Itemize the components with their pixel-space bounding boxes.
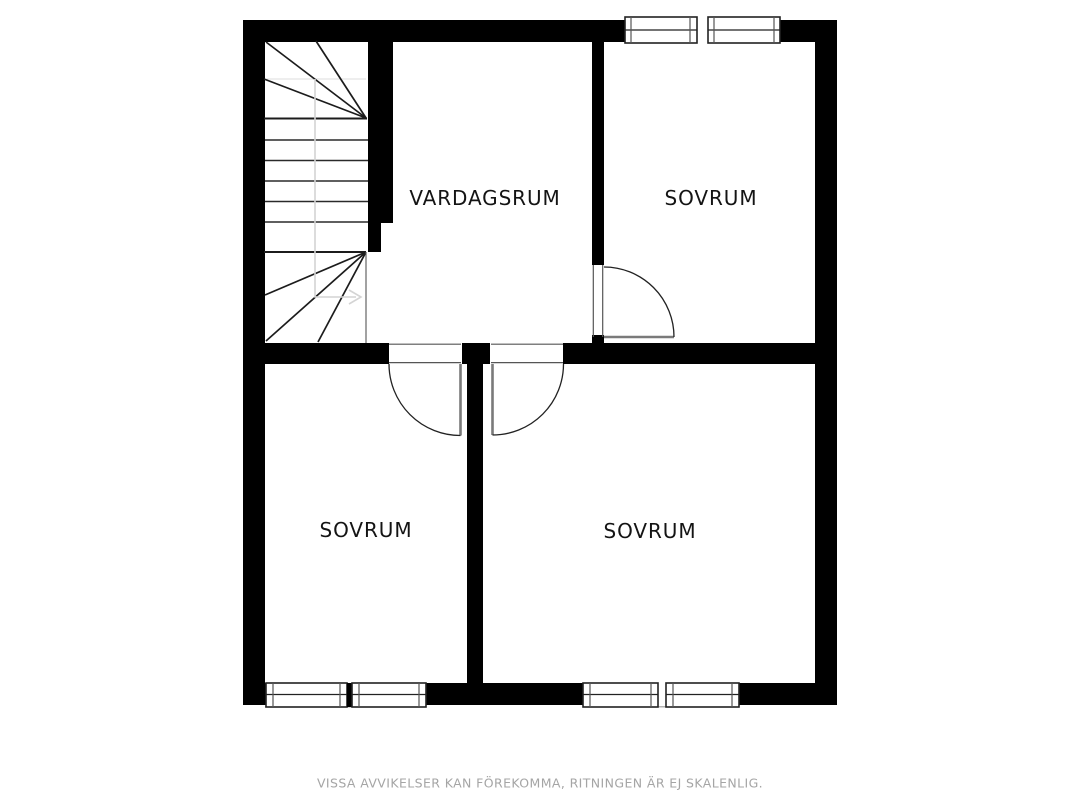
window-top-bedroom [625, 17, 780, 44]
door-swing-arc [389, 364, 461, 436]
door-swing-arc [493, 364, 564, 435]
floor-plan-drawing [0, 0, 1080, 810]
room-label-sovrum-top: SOVRUM [665, 186, 758, 210]
room-label-sovrum-bottom-left: SOVRUM [320, 518, 413, 542]
door-swing-arc [604, 267, 674, 337]
door-bottom-left-bedroom [389, 344, 461, 435]
wall-middle-right-segment [563, 343, 815, 364]
wall-right [815, 20, 837, 705]
window-bottom-right-bedroom [583, 683, 739, 708]
wall-stairwell-stub [368, 223, 381, 252]
room-label-sovrum-bottom-right: SOVRUM [604, 519, 697, 543]
door-top-bedroom [593, 265, 674, 337]
stairs [264, 41, 368, 343]
wall-stairwell [368, 42, 393, 223]
door-bottom-right-bedroom [491, 344, 564, 435]
stair-winder-line [266, 42, 366, 118]
floor-plan-page: VARDAGSRUM SOVRUM SOVRUM SOVRUM VISSA AV… [0, 0, 1080, 810]
wall-top-bedroom-divider [592, 42, 604, 265]
window-bottom-left-bedroom [265, 683, 426, 708]
wall-middle-center-segment [462, 343, 490, 364]
wall-middle-left-segment [243, 343, 389, 364]
disclaimer-text: VISSA AVVIKELSER KAN FÖREKOMMA, RITNINGE… [317, 776, 763, 791]
room-label-vardagsrum: VARDAGSRUM [409, 186, 560, 210]
wall-bottom-bedrooms-divider [467, 364, 483, 683]
